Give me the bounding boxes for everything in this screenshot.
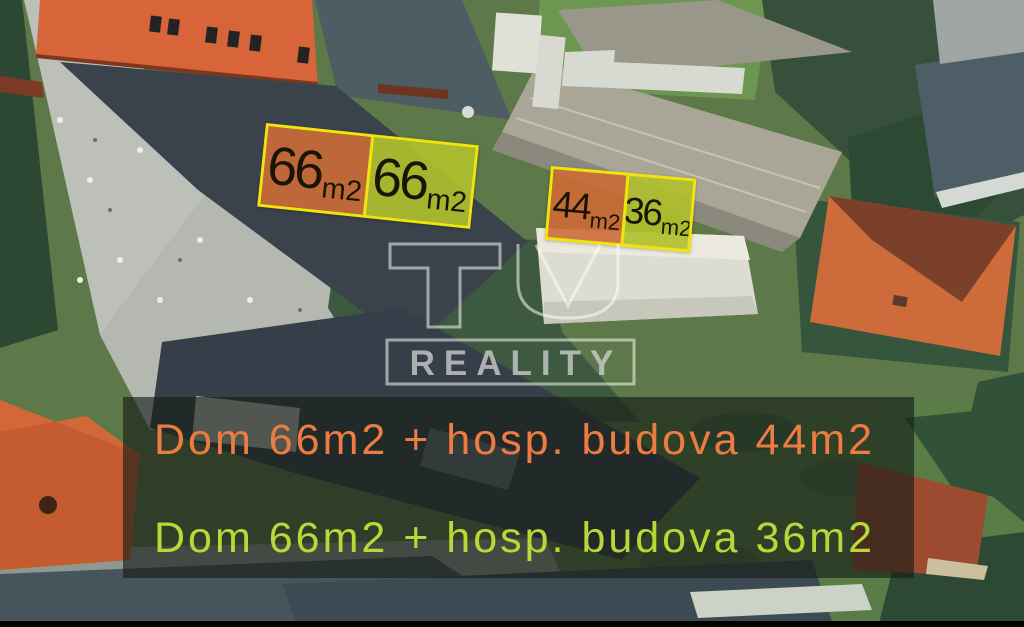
listing-image: 66m2 66m2 44m2 36m2 REALITY Dom 66m2 + h… xyxy=(0,0,1024,627)
area-unit: m2 xyxy=(659,216,692,249)
area-unit: m2 xyxy=(588,210,621,244)
area-value: 66 xyxy=(265,139,324,198)
banner-line-house-44: Dom 66m2 + hosp. budova 44m2 xyxy=(154,417,906,464)
area-label-group-44-36: 44m2 36m2 xyxy=(545,166,697,252)
area-value: 44 xyxy=(551,185,591,225)
bottom-black-bar xyxy=(0,621,1024,627)
area-cell-house-44: 44m2 xyxy=(548,169,627,243)
area-cell-house-66: 66m2 xyxy=(261,126,371,214)
banner-line-house-36: Dom 66m2 + hosp. budova 36m2 xyxy=(154,515,906,562)
area-value: 66 xyxy=(370,150,429,209)
area-value: 36 xyxy=(623,191,663,231)
area-cell-outbuilding-66: 66m2 xyxy=(362,137,475,226)
info-banner: Dom 66m2 + hosp. budova 44m2 Dom 66m2 + … xyxy=(123,397,914,578)
area-cell-outbuilding-36: 36m2 xyxy=(621,176,694,250)
area-unit: m2 xyxy=(424,185,468,225)
area-unit: m2 xyxy=(319,174,363,214)
